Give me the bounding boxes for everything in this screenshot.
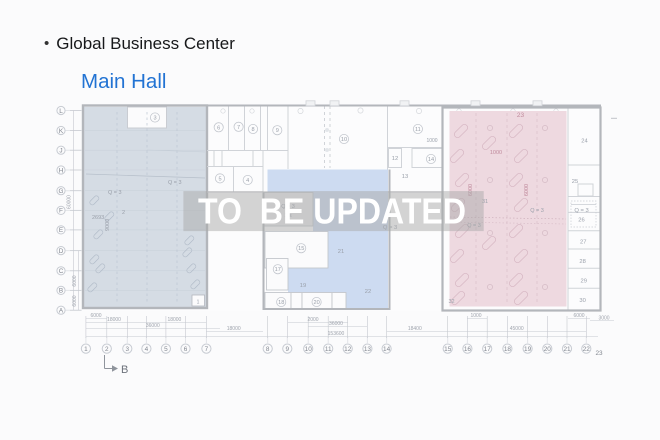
svg-text:1: 1 — [197, 300, 200, 306]
svg-text:1000: 1000 — [426, 138, 437, 144]
svg-text:15: 15 — [298, 246, 304, 252]
svg-text:8: 8 — [266, 346, 270, 353]
svg-text:18000: 18000 — [167, 317, 181, 323]
svg-text:7: 7 — [237, 125, 240, 131]
svg-text:H: H — [59, 167, 64, 174]
svg-text:9000: 9000 — [105, 219, 111, 231]
svg-text:36000: 36000 — [146, 323, 160, 329]
svg-text:15: 15 — [444, 346, 452, 353]
svg-text:28: 28 — [579, 259, 585, 265]
svg-text:A: A — [59, 308, 64, 315]
svg-text:8: 8 — [251, 127, 254, 133]
svg-text:1: 1 — [84, 346, 88, 353]
svg-text:17: 17 — [275, 267, 281, 273]
svg-text:B: B — [59, 288, 63, 295]
svg-text:14: 14 — [428, 157, 434, 163]
svg-text:153600: 153600 — [328, 331, 345, 337]
svg-text:3: 3 — [126, 346, 130, 353]
svg-text:6: 6 — [217, 125, 220, 131]
svg-text:Q = 3: Q = 3 — [168, 180, 182, 186]
svg-text:25: 25 — [572, 179, 578, 185]
svg-text:TO BE UPDATED: TO BE UPDATED — [198, 191, 466, 232]
svg-text:3: 3 — [153, 116, 156, 122]
svg-text:21: 21 — [338, 249, 344, 255]
svg-text:29: 29 — [580, 279, 586, 285]
svg-text:1000: 1000 — [470, 313, 481, 319]
svg-text:2693: 2693 — [92, 215, 104, 221]
svg-text:18000: 18000 — [107, 317, 121, 323]
svg-text:12: 12 — [392, 156, 398, 162]
svg-text:2000: 2000 — [307, 317, 318, 323]
svg-text:Q = 3: Q = 3 — [574, 208, 588, 214]
svg-text:27: 27 — [580, 240, 586, 246]
svg-text:4: 4 — [145, 346, 149, 353]
svg-text:6: 6 — [184, 346, 188, 353]
svg-text:10: 10 — [341, 137, 347, 143]
svg-text:6000: 6000 — [72, 295, 78, 306]
svg-text:21: 21 — [563, 346, 571, 353]
svg-text:11: 11 — [415, 127, 421, 133]
svg-text:5: 5 — [164, 346, 168, 353]
svg-text:6000: 6000 — [90, 313, 101, 319]
svg-text:B: B — [121, 364, 128, 376]
svg-text:23: 23 — [595, 350, 603, 357]
svg-text:K: K — [59, 128, 64, 135]
svg-text:20: 20 — [544, 346, 552, 353]
svg-text:18400: 18400 — [408, 326, 422, 332]
svg-text:6000: 6000 — [573, 313, 584, 319]
svg-text:19: 19 — [524, 346, 532, 353]
svg-text:3000: 3000 — [598, 316, 609, 322]
svg-text:14: 14 — [383, 346, 391, 353]
svg-text:26: 26 — [578, 218, 584, 224]
svg-text:Q = 3: Q = 3 — [530, 208, 544, 214]
svg-text:11: 11 — [325, 346, 332, 353]
svg-text:9: 9 — [276, 128, 279, 134]
svg-text:D: D — [59, 248, 64, 255]
svg-text:22: 22 — [583, 346, 591, 353]
svg-text:23: 23 — [517, 112, 525, 119]
svg-text:L: L — [59, 108, 63, 115]
svg-text:24: 24 — [581, 138, 588, 144]
svg-text:4: 4 — [246, 178, 249, 184]
svg-text:32: 32 — [448, 299, 454, 305]
svg-text:7: 7 — [205, 346, 209, 353]
svg-text:6000: 6000 — [72, 275, 78, 286]
svg-text:F: F — [59, 208, 63, 215]
svg-text:1000: 1000 — [490, 150, 502, 156]
svg-text:16: 16 — [464, 346, 472, 353]
svg-text:5: 5 — [218, 176, 221, 182]
svg-text:17: 17 — [484, 346, 492, 353]
svg-text:10: 10 — [305, 346, 313, 353]
svg-text:19: 19 — [300, 283, 306, 289]
svg-text:22: 22 — [365, 289, 371, 295]
svg-text:60000: 60000 — [67, 195, 73, 209]
svg-text:13: 13 — [364, 346, 372, 353]
svg-text:2: 2 — [105, 346, 109, 353]
svg-text:30: 30 — [579, 298, 585, 304]
svg-text:G: G — [59, 188, 64, 195]
svg-text:36000: 36000 — [329, 321, 343, 327]
svg-text:12: 12 — [344, 346, 352, 353]
svg-text:E: E — [59, 227, 63, 234]
svg-text:13: 13 — [402, 174, 408, 180]
svg-text:C: C — [59, 268, 64, 275]
svg-text:18: 18 — [278, 300, 284, 306]
svg-text:J: J — [59, 148, 62, 155]
svg-text:20: 20 — [313, 300, 319, 306]
svg-text:18: 18 — [504, 346, 512, 353]
svg-text:9: 9 — [286, 346, 290, 353]
svg-text:2: 2 — [122, 210, 125, 216]
svg-text:45000: 45000 — [510, 326, 524, 332]
svg-text:Q = 3: Q = 3 — [108, 190, 122, 196]
svg-text:6000: 6000 — [524, 184, 530, 196]
svg-text:18000: 18000 — [227, 326, 241, 332]
